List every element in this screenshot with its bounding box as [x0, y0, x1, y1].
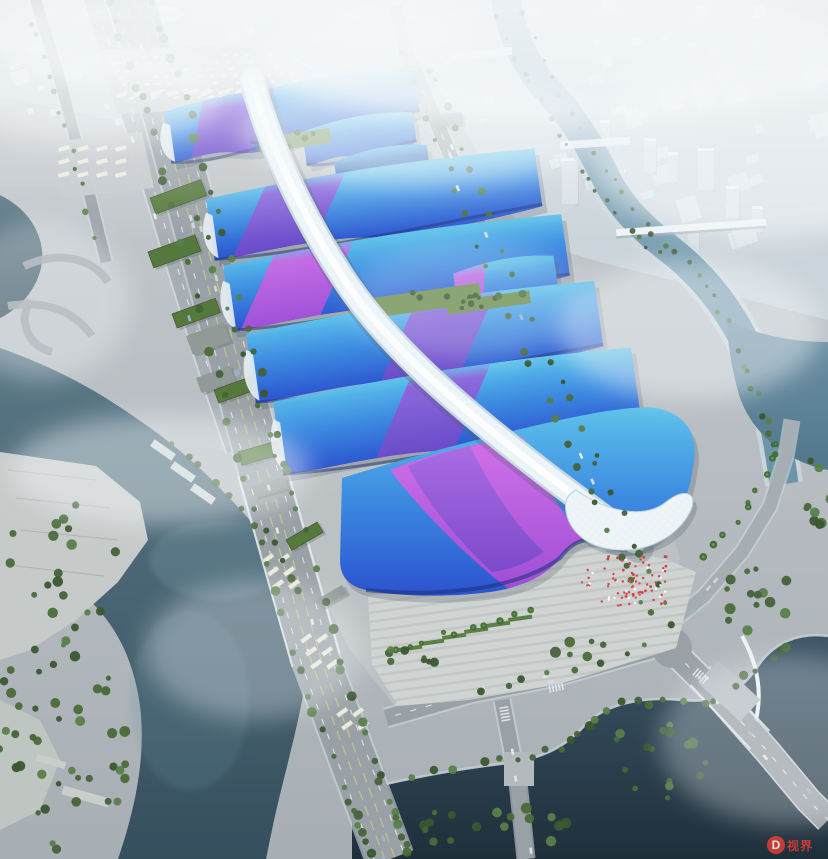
tree	[567, 652, 573, 658]
person-dot	[659, 596, 661, 598]
tree	[236, 294, 242, 300]
palm-crown	[702, 555, 705, 558]
tree	[548, 359, 554, 365]
tree	[592, 499, 598, 505]
tree	[567, 736, 575, 744]
tree	[387, 646, 394, 653]
person-dot	[634, 588, 636, 590]
tree	[430, 658, 439, 667]
person-dot	[628, 597, 630, 599]
tree	[393, 820, 402, 829]
tree	[551, 415, 559, 423]
tree	[566, 394, 573, 401]
tree	[422, 655, 427, 660]
tree	[765, 430, 772, 437]
tree	[429, 837, 437, 845]
tree	[258, 368, 267, 377]
tree	[35, 810, 40, 815]
tree	[358, 828, 367, 837]
tree	[658, 250, 662, 254]
flag-dot	[632, 573, 635, 576]
tree	[30, 734, 37, 741]
tree	[61, 636, 70, 645]
person-dot	[635, 580, 637, 582]
tree	[240, 351, 246, 357]
tree	[644, 246, 648, 250]
person-dot	[589, 582, 591, 584]
tree	[759, 413, 766, 420]
tree	[113, 798, 121, 806]
tree	[625, 651, 630, 656]
tree	[547, 813, 555, 821]
tree	[303, 527, 308, 532]
tree	[756, 391, 761, 396]
tree	[106, 676, 111, 681]
person-dot	[655, 581, 657, 583]
person-dot	[652, 599, 654, 601]
tree	[9, 530, 16, 537]
person-dot	[587, 577, 589, 579]
tree	[632, 786, 638, 792]
tree	[120, 774, 129, 783]
tree	[7, 666, 15, 674]
tree	[402, 847, 411, 856]
person-dot	[638, 591, 640, 593]
tree	[747, 590, 755, 598]
palm-crown	[530, 609, 532, 611]
tree	[582, 652, 592, 662]
tree	[597, 660, 604, 667]
tree	[529, 754, 536, 761]
person-dot	[633, 577, 635, 579]
tree	[480, 757, 489, 766]
tree	[765, 597, 776, 608]
tree	[546, 836, 556, 846]
person-dot	[664, 570, 666, 572]
watermark-letter: D	[772, 838, 781, 852]
tree	[54, 569, 63, 578]
tree	[272, 539, 278, 545]
tree	[506, 683, 512, 689]
tree	[222, 392, 228, 398]
tree	[185, 259, 191, 265]
person-dot	[634, 602, 636, 604]
flag-dot	[614, 579, 617, 582]
tree	[432, 810, 437, 815]
tree	[65, 525, 72, 532]
tree	[93, 684, 102, 693]
person-dot	[664, 580, 666, 582]
person-dot	[621, 560, 623, 562]
flag-dot	[606, 558, 609, 561]
flag-dot	[660, 602, 663, 605]
tree	[264, 561, 270, 567]
person-dot	[608, 598, 610, 600]
tree	[71, 623, 79, 631]
tree	[31, 646, 39, 654]
tree	[645, 700, 654, 709]
flag-dot	[641, 591, 644, 594]
tree	[547, 397, 554, 404]
person-dot	[639, 594, 641, 596]
tree	[744, 568, 750, 574]
tree	[815, 520, 824, 529]
fog-patch	[560, 260, 820, 400]
tree	[492, 808, 502, 818]
person-dot	[603, 567, 605, 569]
person-dot	[621, 597, 623, 599]
tree	[354, 822, 361, 829]
tree	[559, 746, 565, 752]
tree	[84, 609, 90, 615]
tree	[671, 249, 677, 255]
tree	[814, 463, 823, 472]
palm-crown	[420, 642, 422, 644]
flag-dot	[644, 589, 647, 592]
tree	[622, 767, 628, 773]
tree	[73, 705, 83, 715]
person-dot	[631, 586, 633, 588]
flag-dot	[616, 556, 619, 559]
palm-crown	[395, 649, 397, 651]
tree	[204, 347, 214, 357]
tree	[263, 527, 269, 533]
tree	[544, 670, 549, 675]
person-dot	[646, 583, 648, 585]
tree	[550, 647, 561, 658]
watermark-text: 视界	[787, 838, 813, 853]
person-dot	[659, 584, 661, 586]
tree	[643, 743, 651, 751]
tree	[500, 822, 509, 831]
person-dot	[591, 572, 593, 574]
flag-dot	[628, 562, 631, 565]
tree	[589, 639, 595, 645]
tree	[400, 646, 409, 655]
palm-crown	[737, 522, 739, 524]
tree	[209, 266, 217, 274]
tree	[665, 795, 670, 800]
tree	[31, 592, 37, 598]
tree	[561, 380, 566, 385]
tree	[591, 716, 599, 724]
tree	[765, 418, 772, 425]
tree	[362, 838, 369, 845]
tree	[603, 707, 611, 715]
tree	[810, 507, 820, 517]
person-dot	[642, 577, 644, 579]
tree	[753, 566, 758, 571]
tree	[614, 737, 620, 743]
person-dot	[634, 596, 636, 598]
tree	[753, 602, 759, 608]
fog-patch	[145, 580, 365, 720]
tree	[101, 686, 110, 695]
palm-crown	[482, 624, 484, 626]
tree	[387, 658, 394, 665]
tree	[430, 766, 438, 774]
tree	[781, 576, 791, 586]
tree	[638, 600, 643, 605]
tree	[68, 767, 76, 775]
tree	[280, 558, 286, 564]
tree	[725, 617, 732, 624]
tree	[725, 603, 736, 614]
person-dot	[662, 569, 664, 571]
tree	[56, 781, 62, 787]
tree	[618, 698, 626, 706]
palm-crown	[754, 489, 756, 491]
tree	[342, 785, 347, 790]
tree	[11, 730, 19, 738]
tree	[0, 677, 8, 685]
person-dot	[586, 569, 588, 571]
tree	[642, 642, 647, 647]
tree	[71, 797, 81, 807]
tree	[588, 488, 594, 494]
person-dot	[651, 589, 653, 591]
person-dot	[662, 567, 664, 569]
tree	[426, 818, 434, 826]
tree	[635, 550, 643, 558]
tree	[607, 489, 613, 495]
tree	[754, 591, 762, 599]
tree	[362, 729, 368, 735]
aerial-rendering-image: D 视界	[0, 0, 828, 859]
person-dot	[636, 575, 638, 577]
tree	[622, 510, 628, 516]
tree	[358, 717, 367, 726]
tree	[726, 575, 736, 585]
flag-dot	[632, 593, 635, 596]
palm-crown	[771, 457, 773, 459]
tree	[525, 814, 534, 823]
palm-crown	[513, 613, 515, 615]
palm-crown	[499, 620, 502, 623]
person-dot	[623, 591, 625, 593]
tree	[320, 726, 326, 732]
palm-crown	[409, 646, 411, 648]
palm-crown	[472, 626, 474, 628]
person-dot	[607, 583, 609, 585]
tree	[742, 625, 752, 635]
person-dot	[619, 604, 621, 606]
palm-crown	[747, 506, 749, 508]
person-dot	[646, 567, 648, 569]
tree	[75, 716, 85, 726]
tree	[372, 758, 379, 765]
tree	[354, 810, 363, 819]
flag-dot	[664, 600, 667, 603]
person-dot	[639, 558, 641, 560]
person-dot	[613, 597, 615, 599]
person-dot	[638, 582, 640, 584]
person-dot	[660, 577, 662, 579]
scene-canvas: D 视界	[0, 0, 828, 859]
tree	[287, 574, 295, 582]
tree	[600, 641, 606, 647]
person-dot	[634, 565, 636, 567]
tree	[44, 582, 51, 589]
tree	[331, 754, 336, 759]
tree	[663, 243, 668, 248]
tree	[246, 325, 252, 331]
tree	[408, 774, 415, 781]
person-dot	[629, 581, 631, 583]
tree	[313, 565, 320, 572]
tree	[59, 514, 68, 523]
tree	[781, 643, 790, 652]
tree	[251, 522, 258, 529]
tree	[573, 463, 581, 471]
tree	[96, 607, 105, 616]
person-dot	[624, 559, 626, 561]
tree	[403, 841, 410, 848]
tree	[347, 691, 357, 701]
tree	[604, 528, 609, 533]
tree	[250, 348, 256, 354]
tree	[107, 728, 117, 738]
fog-patch	[350, 240, 590, 360]
tree	[448, 811, 456, 819]
tree	[195, 293, 200, 298]
tree	[374, 777, 382, 785]
person-dot	[622, 580, 624, 582]
tree	[32, 705, 38, 711]
tree	[554, 820, 564, 830]
flag-dot	[625, 595, 628, 598]
tree	[496, 755, 503, 762]
tree	[216, 370, 224, 378]
tree	[232, 327, 238, 333]
tree	[36, 669, 42, 675]
tree	[37, 770, 46, 779]
tree	[15, 702, 23, 710]
tree	[807, 458, 814, 465]
tree	[293, 506, 298, 511]
palm-crown	[747, 502, 749, 504]
person-dot	[648, 564, 650, 566]
person-dot	[625, 593, 627, 595]
tree	[260, 389, 268, 397]
tree	[48, 608, 58, 618]
tree	[541, 746, 548, 753]
person-dot	[651, 574, 653, 576]
tree	[634, 697, 642, 705]
flag-dot	[664, 555, 667, 558]
tree	[195, 305, 203, 313]
tree	[515, 757, 520, 762]
flag-dot	[642, 556, 645, 559]
tree	[574, 731, 580, 737]
tree	[52, 576, 63, 587]
person-dot	[601, 600, 603, 602]
tree	[111, 547, 120, 556]
tree	[6, 558, 15, 567]
flag-dot	[665, 565, 668, 568]
tree	[56, 716, 62, 722]
person-dot	[608, 596, 610, 598]
tree	[70, 651, 80, 661]
tree	[116, 766, 125, 775]
tree	[2, 727, 10, 735]
tree	[805, 503, 812, 510]
person-dot	[607, 585, 609, 587]
person-dot	[617, 592, 619, 594]
tree	[665, 782, 674, 791]
flag-dot	[649, 585, 652, 588]
palm-crown	[443, 632, 445, 634]
tree	[259, 539, 265, 545]
tree	[12, 763, 21, 772]
tree	[105, 798, 112, 805]
tree	[367, 849, 376, 858]
person-dot	[664, 590, 666, 592]
tree	[228, 255, 235, 262]
tree	[176, 239, 184, 247]
fog-patch	[240, 75, 600, 185]
tree	[75, 775, 81, 781]
person-dot	[628, 591, 630, 593]
palm-crown	[766, 473, 768, 475]
flag-dot	[622, 569, 625, 572]
tree	[398, 833, 405, 840]
tree	[255, 402, 261, 408]
tree	[632, 544, 637, 549]
person-dot	[612, 577, 614, 579]
tree	[660, 697, 666, 703]
tree	[517, 675, 525, 683]
person-dot	[660, 594, 662, 596]
tree	[447, 837, 454, 844]
tree	[66, 539, 77, 550]
tree	[477, 688, 485, 696]
tree	[86, 775, 93, 782]
tree	[50, 661, 57, 668]
person-dot	[617, 604, 619, 606]
tree	[521, 803, 532, 814]
tree	[571, 667, 578, 674]
tree	[472, 822, 481, 831]
tree	[724, 586, 730, 592]
tree	[668, 621, 675, 628]
tree	[345, 799, 352, 806]
tree	[40, 804, 49, 813]
person-dot	[586, 584, 588, 586]
person-dot	[612, 573, 614, 575]
fog-patch	[10, 415, 310, 525]
tree	[49, 840, 55, 846]
tree	[507, 813, 515, 821]
tree	[50, 698, 60, 708]
tree	[578, 425, 585, 432]
tree	[592, 461, 597, 466]
tree	[422, 827, 428, 833]
tree	[119, 726, 130, 737]
tree	[564, 637, 575, 648]
person-dot	[628, 603, 630, 605]
tree	[564, 440, 571, 447]
tree	[448, 765, 457, 774]
palm-crown	[453, 633, 455, 635]
tree	[595, 453, 600, 458]
person-dot	[642, 562, 644, 564]
palm-crown	[721, 534, 723, 536]
tree	[48, 531, 58, 541]
tree	[59, 591, 68, 600]
tree	[525, 360, 532, 367]
watermark: D 视界	[767, 836, 813, 854]
